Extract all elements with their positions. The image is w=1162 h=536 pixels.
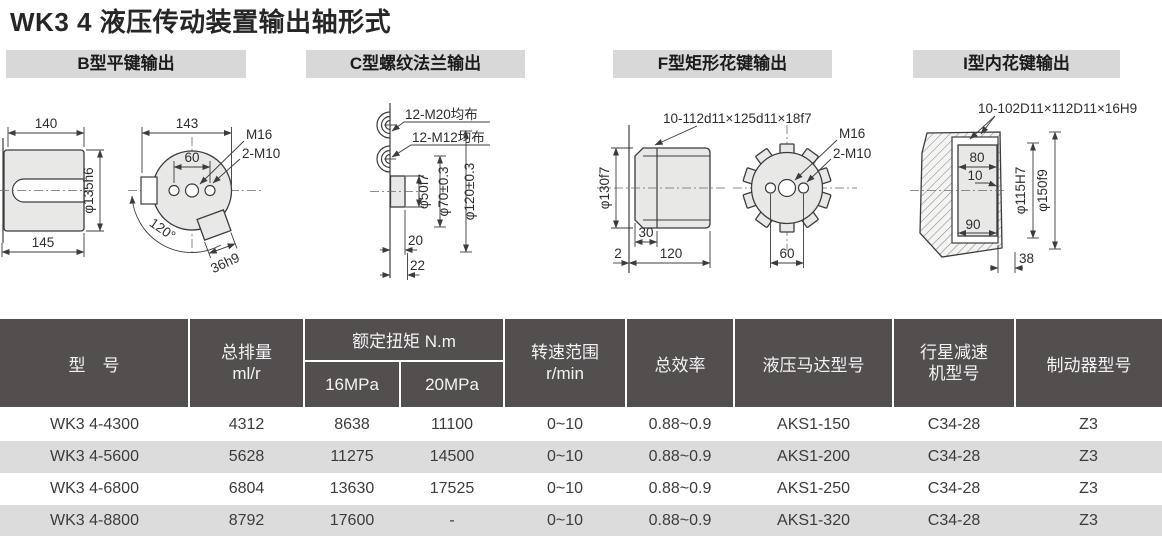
cell-motor: AKS1-250 — [734, 473, 893, 505]
cell-reducer: C34-28 — [893, 473, 1015, 505]
dim-dia50f7: φ50f7 — [416, 174, 431, 209]
dim-10: 10 — [967, 168, 982, 183]
center-tapped-hole — [779, 180, 796, 197]
col-header-brake: 制动器型号 — [1015, 319, 1162, 408]
cell-model: WK3 4-6800 — [0, 473, 189, 505]
cell-torque16: 13630 — [304, 473, 400, 505]
label-2m10: 2-M10 — [833, 146, 871, 161]
label-spline-spec-i: 10-102D11×112D11×16H9 — [978, 101, 1137, 116]
label-m16: M16 — [246, 127, 272, 142]
cell-efficiency: 0.88~0.9 — [626, 505, 734, 536]
col-header-speed-line2: r/min — [505, 363, 625, 384]
cell-speed: 0~10 — [504, 473, 626, 505]
cell-model: WK3 4-4300 — [0, 408, 189, 441]
c-section-view: 12-M20均布 12-M12均布 φ50f7 φ70±0.3 φ120±0.3… — [370, 103, 490, 280]
f-front-view: 60 M16 2-M10 — [733, 125, 871, 268]
dim-22: 22 — [410, 258, 425, 273]
cell-displacement: 6804 — [189, 473, 304, 505]
table-row: WK3 4-6800 6804 13630 17525 0~10 0.88~0.… — [0, 473, 1162, 505]
cell-efficiency: 0.88~0.9 — [626, 441, 734, 473]
dim-80: 80 — [969, 150, 984, 165]
cell-torque16: 11275 — [304, 441, 400, 473]
f-side-view: φ130f7 30 2 120 — [597, 125, 725, 273]
dim-140: 140 — [35, 116, 58, 131]
section-header-i-type: I型内花键输出 — [913, 50, 1120, 78]
cell-motor: AKS1-200 — [734, 441, 893, 473]
dim-38: 38 — [1019, 251, 1034, 266]
label-12-m12: 12-M12均布 — [412, 130, 485, 145]
dim-120: 120 — [660, 246, 683, 261]
cell-brake: Z3 — [1015, 441, 1162, 473]
cell-brake: Z3 — [1015, 408, 1162, 441]
section-header-c-type: C型螺纹法兰输出 — [306, 50, 525, 78]
cell-torque20: 17525 — [400, 473, 504, 505]
cell-torque16: 17600 — [304, 505, 400, 536]
col-header-16mpa: 16MPa — [304, 361, 400, 408]
cell-reducer: C34-28 — [893, 505, 1015, 536]
cell-speed: 0~10 — [504, 505, 626, 536]
cell-motor: AKS1-320 — [734, 505, 893, 536]
spec-table-wrap: 型 号 总排量 ml/r 额定扭矩 N.m 转速范围 r/min 总效率 液压马… — [0, 319, 1162, 536]
cell-displacement: 8792 — [189, 505, 304, 536]
diagram-b-type-key-output: 140 145 φ135h6 143 60 M16 2- — [0, 95, 300, 305]
cell-brake: Z3 — [1015, 505, 1162, 536]
side-key-tab — [141, 177, 157, 204]
dim-30: 30 — [638, 225, 653, 240]
col-header-motor: 液压马达型号 — [734, 319, 893, 408]
col-header-reducer: 行星减速 机型号 — [893, 319, 1015, 408]
cell-displacement: 4312 — [189, 408, 304, 441]
dim-60: 60 — [184, 150, 199, 165]
diagram-c-type-flange-output: 12-M20均布 12-M12均布 φ50f7 φ70±0.3 φ120±0.3… — [300, 95, 560, 305]
col-header-reducer-line1: 行星减速 — [894, 342, 1014, 363]
table-row: WK3 4-8800 8792 17600 - 0~10 0.88~0.9 AK… — [0, 505, 1162, 536]
col-header-speed: 转速范围 r/min — [504, 319, 626, 408]
b-side-view: 140 145 φ135h6 — [0, 116, 104, 257]
cell-speed: 0~10 — [504, 408, 626, 441]
cell-torque16: 8638 — [304, 408, 400, 441]
center-tapped-hole — [186, 184, 199, 197]
cell-speed: 0~10 — [504, 441, 626, 473]
dim-36h9: 36h9 — [208, 250, 242, 276]
label-spline-spec-f: 10-112d11×125d11×18f7 — [663, 111, 812, 126]
col-header-torque-group: 额定扭矩 N.m — [304, 319, 504, 361]
col-header-displacement-line1: 总排量 — [190, 342, 303, 363]
dim-143: 143 — [176, 116, 199, 131]
dim-2: 2 — [614, 246, 622, 261]
col-header-model: 型 号 — [0, 319, 189, 408]
section-header-f-type: F型矩形花键输出 — [613, 50, 832, 78]
b-front-view: 143 60 M16 2-M10 120° 36h9 — [128, 116, 280, 276]
label-m16: M16 — [839, 126, 865, 141]
col-header-20mpa: 20MPa — [400, 361, 504, 408]
dim-dia115h7: φ115H7 — [1013, 167, 1028, 215]
cell-efficiency: 0.88~0.9 — [626, 473, 734, 505]
cell-reducer: C34-28 — [893, 441, 1015, 473]
col-header-efficiency: 总效率 — [626, 319, 734, 408]
cell-torque20: 11100 — [400, 408, 504, 441]
section-header-b-type: B型平键输出 — [6, 50, 246, 78]
dim-60: 60 — [779, 246, 794, 261]
table-row: WK3 4-5600 5628 11275 14500 0~10 0.88~0.… — [0, 441, 1162, 473]
table-row: WK3 4-4300 4312 8638 11100 0~10 0.88~0.9… — [0, 408, 1162, 441]
cell-model: WK3 4-8800 — [0, 505, 189, 536]
dim-dia130f7: φ130f7 — [597, 167, 612, 210]
label-2m10: 2-M10 — [242, 146, 280, 161]
thread-arcs-m12 — [377, 146, 396, 172]
diagram-f-type-spline-output: 10-112d11×125d11×18f7 φ130f7 30 2 120 — [585, 95, 895, 305]
cell-brake: Z3 — [1015, 473, 1162, 505]
dim-90: 90 — [965, 217, 980, 232]
catalog-page: WK3 4 液压传动装置输出轴形式 B型平键输出 C型螺纹法兰输出 F型矩形花键… — [0, 0, 1162, 536]
col-header-reducer-line2: 机型号 — [894, 363, 1014, 384]
dim-dia135h6: φ135h6 — [81, 167, 96, 213]
dim-20: 20 — [408, 233, 423, 248]
diagram-i-type-internal-spline-output: 10-102D11×112D11×16H9 80 10 90 φ115H7 φ1… — [895, 95, 1162, 305]
cell-torque20: - — [400, 505, 504, 536]
cell-motor: AKS1-150 — [734, 408, 893, 441]
cell-displacement: 5628 — [189, 441, 304, 473]
thread-arcs-m20 — [377, 112, 396, 138]
cell-reducer: C34-28 — [893, 408, 1015, 441]
dim-dia70: φ70±0.3 — [436, 167, 451, 217]
dim-145: 145 — [32, 235, 55, 250]
cell-torque20: 14500 — [400, 441, 504, 473]
dim-dia120: φ120±0.3 — [462, 163, 477, 220]
cell-model: WK3 4-5600 — [0, 441, 189, 473]
cell-efficiency: 0.88~0.9 — [626, 408, 734, 441]
label-12-m20: 12-M20均布 — [405, 107, 478, 122]
col-header-speed-line1: 转速范围 — [505, 342, 625, 363]
i-section-view: 10-102D11×112D11×16H9 80 10 90 φ115H7 φ1… — [910, 101, 1137, 273]
dim-dia150f9: φ150f9 — [1035, 169, 1050, 212]
col-header-displacement: 总排量 ml/r — [189, 319, 304, 408]
col-header-displacement-line2: ml/r — [190, 363, 303, 384]
spec-table: 型 号 总排量 ml/r 额定扭矩 N.m 转速范围 r/min 总效率 液压马… — [0, 319, 1162, 536]
page-title: WK3 4 液压传动装置输出轴形式 — [10, 2, 391, 39]
